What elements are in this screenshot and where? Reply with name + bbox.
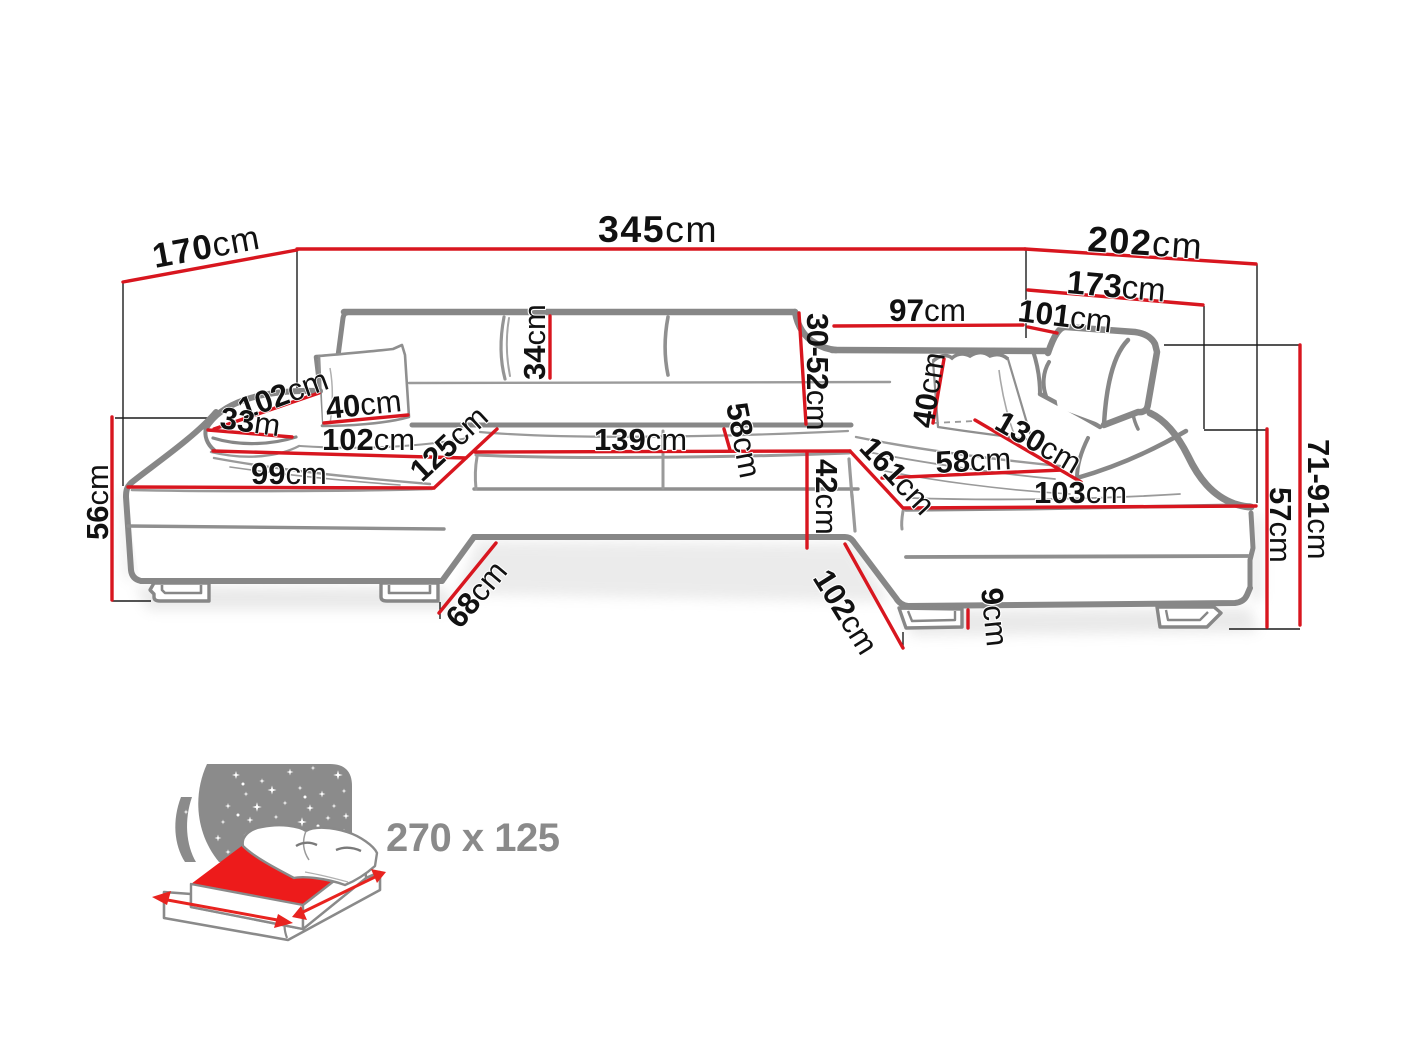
svg-text:99cm: 99cm [251, 456, 327, 491]
svg-text:270 x 125: 270 x 125 [386, 816, 560, 860]
svg-text:42cm: 42cm [809, 459, 844, 535]
svg-text:103cm: 103cm [1034, 475, 1127, 510]
svg-text:30-52cm: 30-52cm [800, 313, 835, 430]
svg-text:58cm: 58cm [935, 441, 1013, 480]
svg-text:56cm: 56cm [80, 464, 115, 540]
svg-text:345cm: 345cm [598, 208, 718, 250]
svg-text:139cm: 139cm [594, 422, 687, 457]
svg-text:57cm: 57cm [1263, 487, 1298, 563]
svg-text:71-91cm: 71-91cm [1301, 439, 1336, 560]
svg-text:202cm: 202cm [1086, 218, 1204, 267]
svg-text:102cm: 102cm [322, 422, 415, 457]
svg-text:34cm: 34cm [517, 304, 552, 380]
svg-text:9cm: 9cm [974, 586, 1015, 648]
svg-text:97cm: 97cm [889, 292, 966, 328]
